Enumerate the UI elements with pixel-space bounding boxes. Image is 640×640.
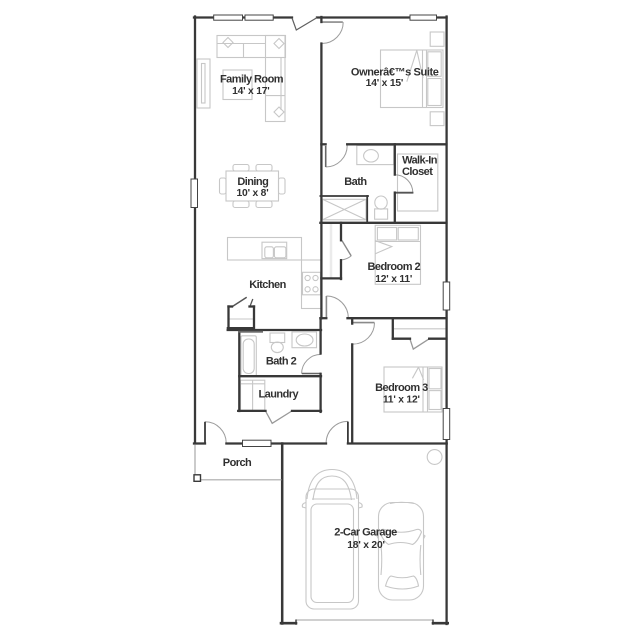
svg-text:2-Car Garage: 2-Car Garage [334,527,397,539]
svg-text:11' x 12': 11' x 12' [383,394,420,405]
svg-text:Bedroom 3: Bedroom 3 [375,382,428,394]
svg-text:14' x 17': 14' x 17' [232,86,269,97]
svg-text:Bedroom 2: Bedroom 2 [368,261,421,273]
svg-text:14' x 15': 14' x 15' [366,78,403,89]
svg-text:Laundry: Laundry [259,389,300,401]
svg-text:Porch: Porch [223,457,252,469]
svg-text:Bath 2: Bath 2 [266,356,297,368]
svg-text:Kitchen: Kitchen [249,279,286,291]
svg-text:Dining: Dining [237,176,268,188]
svg-text:10' x 8': 10' x 8' [237,188,269,199]
svg-text:Ownerâ€™s Suite: Ownerâ€™s Suite [351,67,439,79]
svg-text:Closet: Closet [402,166,433,178]
svg-text:Walk-In: Walk-In [402,155,438,167]
svg-text:Bath: Bath [344,176,367,188]
svg-text:12' x 11': 12' x 11' [375,274,412,285]
svg-text:Family Room: Family Room [220,74,284,86]
svg-text:18' x 20': 18' x 20' [347,540,384,551]
